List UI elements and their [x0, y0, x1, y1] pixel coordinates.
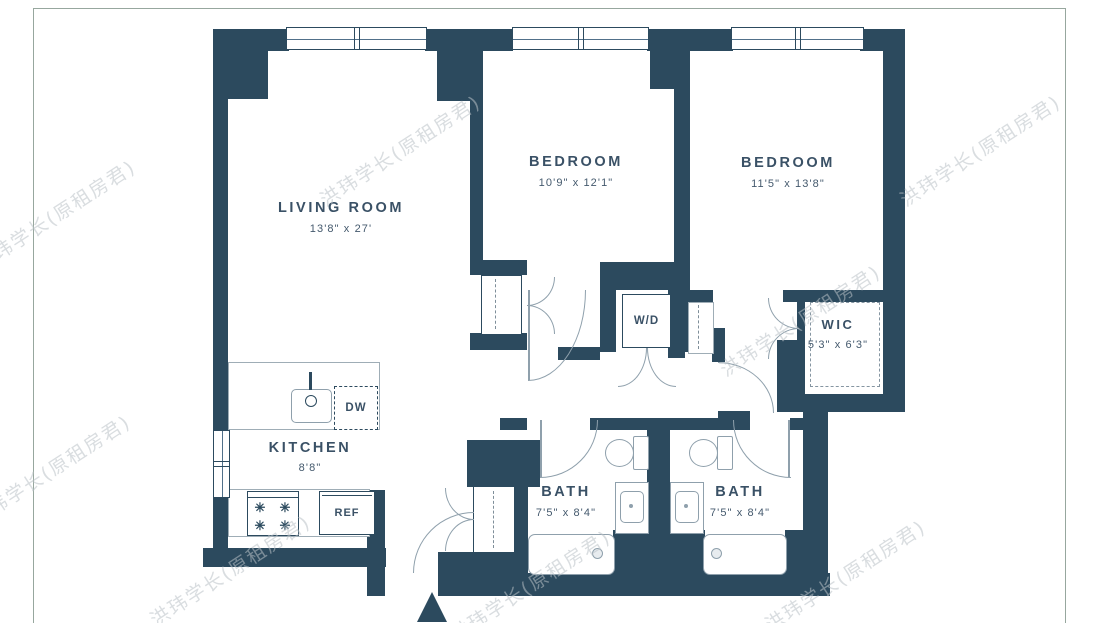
wall-segment: [500, 418, 527, 430]
washer-dryer-box: W/D: [622, 294, 671, 348]
window-mullion: [354, 28, 360, 49]
tub-drain-icon: [592, 548, 603, 559]
toilet-icon: [633, 436, 649, 470]
wall-segment: [790, 418, 803, 430]
wall-segment: [467, 440, 540, 487]
wall-segment: [790, 394, 905, 412]
burner-icon: ✳: [280, 501, 292, 514]
wall-segment: [674, 89, 690, 302]
closet: [688, 302, 714, 354]
wall-segment: [803, 412, 828, 573]
refrigerator-box: REF: [319, 491, 375, 535]
window-mullion: [214, 461, 229, 467]
wall-segment: [688, 290, 713, 302]
door-leaf: [788, 420, 790, 477]
wall-segment: [590, 418, 647, 430]
burner-icon: ✳: [255, 519, 267, 532]
toilet-icon: [605, 439, 634, 467]
wall-segment: [883, 29, 905, 394]
wall-segment: [785, 530, 803, 575]
wall-segment: [613, 530, 647, 575]
wall-segment: [600, 290, 616, 352]
bath-2-dimensions: 7'5" x 8'4": [710, 507, 770, 519]
wall-segment: [437, 29, 483, 101]
wic-label: WIC: [821, 317, 854, 332]
window-icon: [213, 430, 230, 498]
wall-segment: [650, 29, 690, 89]
window-icon: [731, 27, 864, 50]
bath-1-label: BATH: [541, 484, 591, 500]
kitchen-label: KITCHEN: [269, 440, 352, 456]
refrigerator-label: REF: [335, 507, 360, 519]
faucet-icon: [309, 372, 312, 390]
wall-segment: [647, 418, 670, 573]
sink-drain-icon: [629, 504, 633, 508]
closet-rod-line: [495, 279, 496, 329]
door-leaf: [540, 420, 542, 477]
wall-segment: [513, 487, 528, 577]
closet-rod-line: [493, 491, 494, 548]
refrigerator-handle: [322, 495, 372, 496]
entrance-arrow-icon: [417, 592, 447, 622]
closet: [481, 275, 522, 335]
bath-2-label: BATH: [715, 484, 765, 500]
tub-drain-icon: [711, 548, 722, 559]
bedroom-2-label: BEDROOM: [741, 155, 835, 171]
wall-segment: [470, 333, 527, 350]
burner-icon: ✳: [255, 501, 267, 514]
bedroom-1-label: BEDROOM: [529, 154, 623, 170]
floor-plan: DW ✳ ✳ ✳ ✳ REF W/D: [0, 0, 1100, 623]
bath-1-dimensions: 7'5" x 8'4": [536, 507, 596, 519]
washer-dryer-label: W/D: [634, 315, 659, 327]
window-mullion: [795, 28, 801, 49]
wall-segment: [203, 548, 386, 567]
stove-burners: ✳ ✳ ✳ ✳: [248, 498, 298, 535]
sink-drain-icon: [684, 504, 688, 508]
faucet-icon: [305, 395, 317, 407]
window-mullion: [578, 28, 584, 49]
wall-segment: [213, 496, 228, 550]
dishwasher-label: DW: [345, 402, 366, 414]
wall-segment: [470, 101, 483, 261]
closet-rod-line: [698, 305, 699, 349]
burner-icon: ✳: [280, 519, 292, 532]
bedroom-2-dimensions: 11'5" x 13'8": [751, 178, 825, 190]
wic-dimensions: 5'3" x 6'3": [808, 339, 868, 351]
toilet-icon: [689, 439, 718, 467]
wall-segment: [470, 260, 527, 275]
wall-segment: [213, 51, 228, 431]
wall-segment: [670, 530, 705, 575]
living-room-label: LIVING ROOM: [278, 200, 404, 216]
living-room-dimensions: 13'8" x 27': [310, 223, 372, 235]
bedroom-1-dimensions: 10'9" x 12'1": [539, 177, 614, 189]
window-icon: [286, 27, 427, 50]
window-icon: [512, 27, 649, 50]
dishwasher-box: DW: [334, 386, 378, 430]
stove-icon: ✳ ✳ ✳ ✳: [247, 497, 299, 536]
kitchen-dimensions: 8'8": [299, 462, 322, 474]
toilet-icon: [717, 436, 733, 470]
